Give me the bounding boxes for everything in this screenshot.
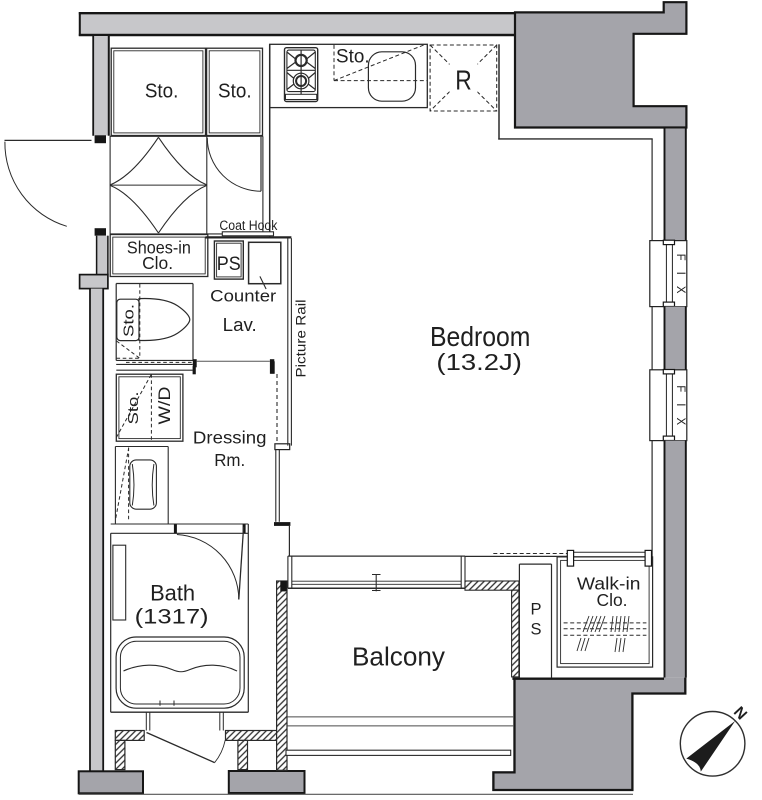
svg-text:Bedroom: Bedroom (430, 321, 531, 352)
svg-text:Sto.: Sto. (120, 304, 137, 337)
svg-text:S: S (530, 621, 541, 639)
svg-text:Sto.: Sto. (125, 392, 142, 425)
svg-text:Balcony: Balcony (352, 644, 445, 672)
svg-text:Clo.: Clo. (142, 253, 173, 273)
svg-text:Clo.: Clo. (597, 590, 628, 610)
svg-text:W/D: W/D (155, 387, 174, 425)
svg-text:R: R (455, 65, 472, 96)
svg-text:FIX: FIX (674, 254, 686, 294)
svg-text:Sto.: Sto. (336, 45, 370, 67)
svg-text:Bath: Bath (150, 580, 195, 605)
svg-text:PS: PS (217, 253, 241, 275)
svg-text:(1317): (1317) (135, 604, 209, 628)
svg-text:Lav.: Lav. (223, 315, 257, 335)
svg-text:P: P (530, 601, 541, 619)
svg-text:Sto.: Sto. (145, 81, 179, 103)
svg-text:Coat Hook: Coat Hook (219, 218, 277, 233)
svg-text:FIX: FIX (674, 385, 686, 425)
svg-text:(13.2J): (13.2J) (436, 349, 522, 375)
svg-text:Dressing: Dressing (193, 428, 267, 448)
svg-text:Rm.: Rm. (214, 450, 245, 470)
svg-text:Sto.: Sto. (218, 81, 252, 103)
svg-text:Counter: Counter (210, 287, 277, 305)
svg-text:Picture Rail: Picture Rail (293, 300, 308, 378)
